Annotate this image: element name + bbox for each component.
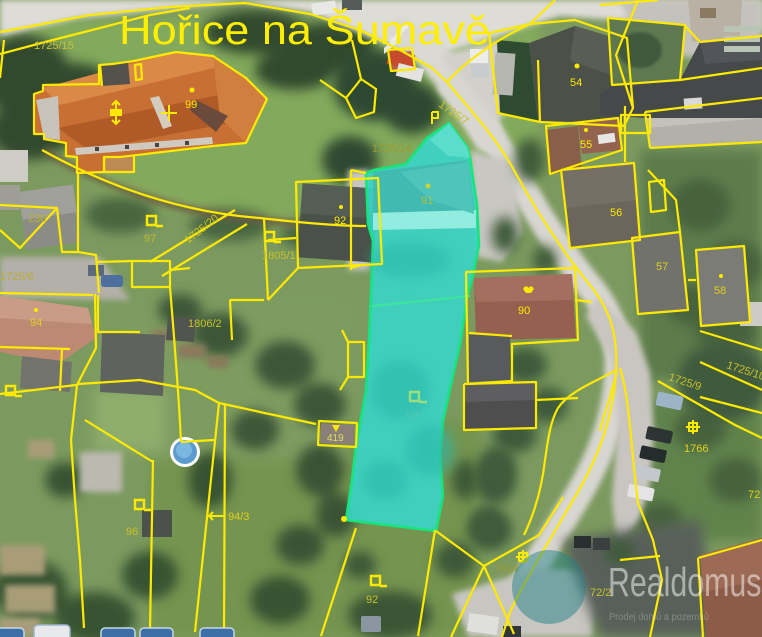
svg-text:1805/1: 1805/1: [262, 250, 296, 262]
svg-text:419: 419: [327, 433, 344, 444]
svg-text:92: 92: [366, 594, 378, 606]
svg-text:96: 96: [126, 526, 138, 538]
svg-text:1725/6: 1725/6: [0, 271, 34, 283]
svg-text:1725/15: 1725/15: [34, 40, 74, 52]
svg-text:92: 92: [334, 215, 346, 227]
svg-text:99: 99: [185, 99, 197, 111]
svg-text:Realdomus: Realdomus: [608, 558, 761, 605]
svg-text:54: 54: [570, 77, 582, 89]
svg-text:Hořice na Šumavě: Hořice na Šumavě: [119, 7, 490, 53]
svg-text:56: 56: [610, 207, 622, 219]
svg-text:236: 236: [28, 213, 46, 225]
svg-text:57: 57: [656, 261, 668, 273]
svg-text:1725/14: 1725/14: [372, 143, 412, 155]
svg-text:1766: 1766: [684, 443, 708, 455]
svg-text:1806/2: 1806/2: [188, 318, 222, 330]
svg-text:94/3: 94/3: [228, 511, 249, 523]
svg-text:90: 90: [518, 305, 530, 317]
svg-text:55: 55: [580, 139, 592, 151]
svg-text:94: 94: [30, 317, 42, 329]
svg-text:Prodej domů a pozemků: Prodej domů a pozemků: [609, 611, 709, 623]
svg-text:97: 97: [144, 233, 156, 245]
svg-text:58: 58: [714, 285, 726, 297]
svg-text:93: 93: [406, 410, 418, 422]
svg-text:91: 91: [421, 195, 433, 207]
svg-text:72: 72: [748, 489, 760, 501]
